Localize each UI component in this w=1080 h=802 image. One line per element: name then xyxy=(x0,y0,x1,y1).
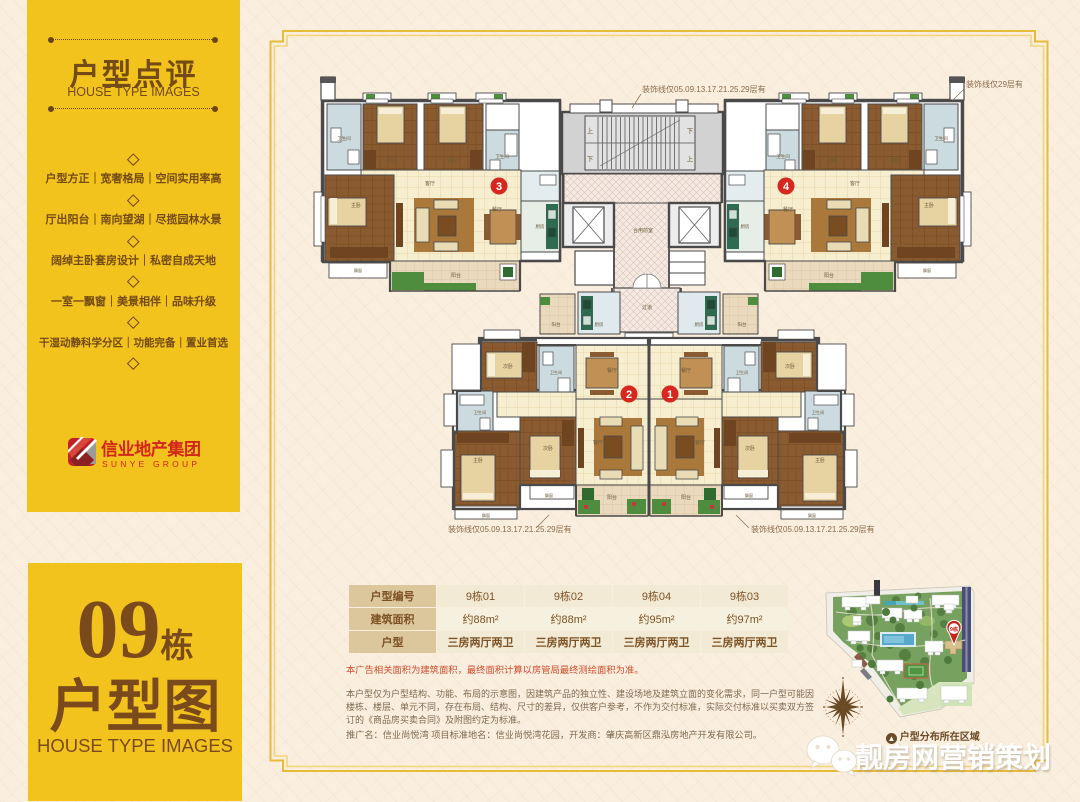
svg-text:3: 3 xyxy=(496,181,502,193)
svg-text:客厅: 客厅 xyxy=(850,180,860,187)
svg-text:客厅: 客厅 xyxy=(425,180,435,187)
svg-text:飘窗: 飘窗 xyxy=(745,492,753,498)
svg-text:装饰线仅29层有: 装饰线仅29层有 xyxy=(966,79,1023,89)
svg-text:飘窗: 飘窗 xyxy=(354,267,362,273)
svg-text:卫生间: 卫生间 xyxy=(495,153,509,160)
svg-text:次卧: 次卧 xyxy=(890,157,900,164)
svg-text:9栋: 9栋 xyxy=(950,625,959,633)
svg-text:SUNYE GROUP: SUNYE GROUP xyxy=(102,459,200,469)
svg-text:装饰线仅05.09.13.17.21.25.29层有: 装饰线仅05.09.13.17.21.25.29层有 xyxy=(642,84,766,94)
svg-text:飘窗: 飘窗 xyxy=(545,492,553,498)
svg-text:卫生间: 卫生间 xyxy=(776,153,790,160)
svg-text:装饰线仅05.09.13.17.21.25.29层有: 装饰线仅05.09.13.17.21.25.29层有 xyxy=(448,524,572,534)
svg-text:餐厅: 餐厅 xyxy=(681,367,691,374)
svg-text:主卧: 主卧 xyxy=(815,457,825,464)
svg-text:主卧: 主卧 xyxy=(351,202,361,209)
svg-text:卫生间: 卫生间 xyxy=(736,369,749,376)
svg-text:卫生间: 卫生间 xyxy=(550,369,563,376)
svg-text:客厅: 客厅 xyxy=(695,439,705,446)
svg-text:下: 下 xyxy=(587,155,594,163)
svg-text:阳台: 阳台 xyxy=(607,494,617,501)
svg-text:阳台: 阳台 xyxy=(824,272,834,279)
svg-text:卫生间: 卫生间 xyxy=(934,135,948,142)
svg-text:飘窗: 飘窗 xyxy=(808,512,816,518)
svg-text:次卧: 次卧 xyxy=(385,157,395,164)
svg-text:飘窗: 飘窗 xyxy=(923,267,931,273)
svg-text:厨房: 厨房 xyxy=(536,223,545,230)
svg-text:餐厅: 餐厅 xyxy=(607,367,617,374)
svg-text:过道: 过道 xyxy=(642,304,652,311)
svg-text:厨房: 厨房 xyxy=(595,321,604,328)
svg-text:卫生间: 卫生间 xyxy=(337,135,351,142)
svg-text:客厅: 客厅 xyxy=(593,439,603,446)
svg-text:次卧: 次卧 xyxy=(827,157,837,164)
svg-text:阳台: 阳台 xyxy=(552,321,561,328)
svg-text:信业地产集团: 信业地产集团 xyxy=(101,439,201,459)
svg-text:阳台: 阳台 xyxy=(451,272,461,279)
svg-text:1: 1 xyxy=(667,389,673,401)
svg-text:卫生间: 卫生间 xyxy=(474,409,487,416)
svg-text:厨房: 厨房 xyxy=(741,223,750,230)
svg-text:主卧: 主卧 xyxy=(473,457,483,464)
svg-text:阳台: 阳台 xyxy=(681,494,691,501)
svg-text:合用前室: 合用前室 xyxy=(633,227,653,234)
svg-text:卫生间: 卫生间 xyxy=(812,409,825,416)
svg-text:阳台: 阳台 xyxy=(738,321,747,328)
svg-text:上: 上 xyxy=(587,126,594,135)
svg-text:餐厅: 餐厅 xyxy=(783,206,793,213)
svg-text:次卧: 次卧 xyxy=(745,445,755,452)
svg-text:次卧: 次卧 xyxy=(543,445,553,452)
svg-text:2: 2 xyxy=(626,389,632,401)
svg-text:次卧: 次卧 xyxy=(448,157,458,164)
svg-text:次卧: 次卧 xyxy=(785,363,795,370)
svg-text:餐厅: 餐厅 xyxy=(492,206,502,213)
svg-text:厨房: 厨房 xyxy=(695,321,704,328)
svg-text:上: 上 xyxy=(687,154,694,163)
svg-text:主卧: 主卧 xyxy=(924,202,934,209)
svg-text:次卧: 次卧 xyxy=(503,363,513,370)
svg-text:装饰线仅05.09.13.17.21.25.29层有: 装饰线仅05.09.13.17.21.25.29层有 xyxy=(751,524,875,534)
svg-text:下: 下 xyxy=(687,127,694,135)
svg-text:4: 4 xyxy=(783,181,790,193)
svg-text:飘窗: 飘窗 xyxy=(482,512,490,518)
